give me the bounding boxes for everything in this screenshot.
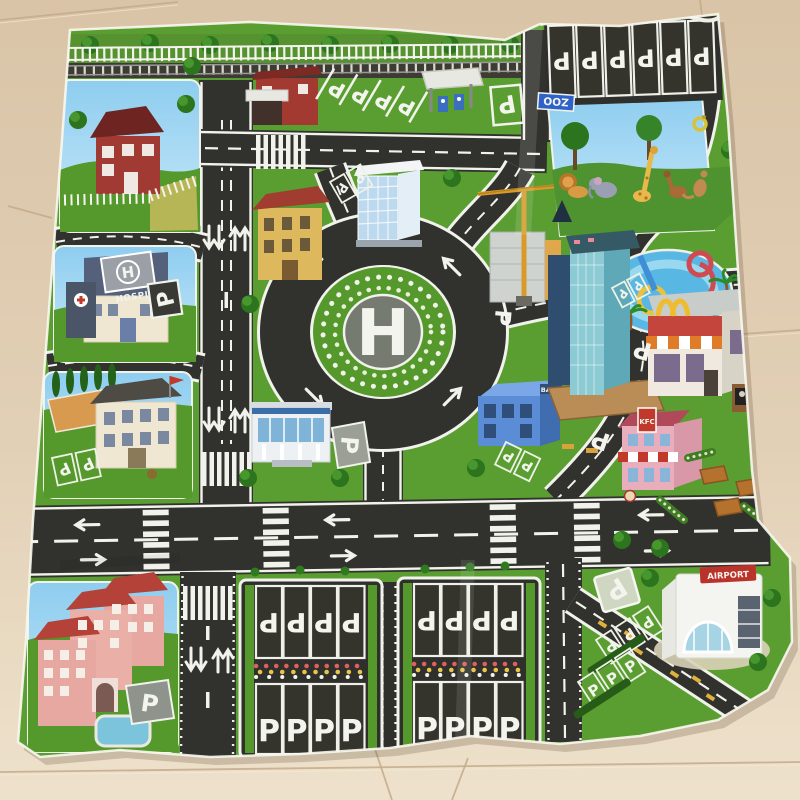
tree-icon bbox=[763, 589, 781, 607]
kfc-awning bbox=[618, 452, 678, 462]
svg-text:ZOO: ZOO bbox=[543, 94, 569, 108]
airport-sign-board: AIRPORT bbox=[700, 565, 757, 584]
svg-text:P: P bbox=[581, 45, 600, 74]
svg-text:P: P bbox=[313, 714, 335, 749]
svg-text:P: P bbox=[342, 606, 362, 637]
svg-text:P: P bbox=[258, 714, 280, 749]
school-building bbox=[90, 376, 184, 479]
arch-entrance bbox=[96, 683, 114, 712]
hospital-panel: H HOSPITAL P bbox=[54, 246, 196, 362]
svg-text:P: P bbox=[637, 43, 656, 72]
svg-text:P: P bbox=[341, 714, 363, 749]
svg-text:P: P bbox=[286, 714, 308, 749]
svg-text:P: P bbox=[334, 435, 363, 455]
logo-badge-icon bbox=[625, 491, 636, 502]
tree-icon bbox=[69, 111, 87, 129]
farm-panel bbox=[60, 80, 200, 232]
svg-text:P: P bbox=[553, 46, 572, 75]
svg-text:P: P bbox=[609, 44, 628, 73]
play-mat-photo: H bbox=[0, 0, 800, 800]
svg-text:P: P bbox=[472, 604, 492, 635]
svg-text:P: P bbox=[314, 606, 334, 637]
road-parking-mark: P bbox=[488, 309, 514, 327]
svg-text:P: P bbox=[287, 606, 307, 637]
svg-text:P: P bbox=[417, 604, 437, 635]
fire-station bbox=[246, 66, 322, 125]
fuel-pump-icon bbox=[454, 94, 464, 110]
south-avenue bbox=[180, 572, 236, 758]
photo-stage: H bbox=[0, 0, 800, 800]
kfc-sign: KFC bbox=[639, 418, 654, 426]
awning bbox=[646, 336, 724, 349]
apartment-parking-pad: P bbox=[126, 680, 174, 724]
svg-text:P: P bbox=[692, 41, 711, 70]
hospital-roof-letter: H bbox=[121, 263, 136, 283]
police-parking-pad: P bbox=[332, 422, 370, 468]
parking-lot-west: P P P P P P P P bbox=[240, 580, 382, 758]
kfc-sign-board: KFC bbox=[638, 408, 656, 432]
civic-building bbox=[252, 186, 330, 280]
svg-text:P: P bbox=[259, 606, 279, 637]
svg-text:P: P bbox=[665, 42, 684, 71]
apartment-panel: P bbox=[28, 572, 178, 752]
tree-icon bbox=[749, 653, 767, 671]
play-mat: H bbox=[10, 10, 792, 758]
hospital-parking-pad: P bbox=[148, 280, 182, 318]
tree-icon bbox=[177, 95, 195, 113]
tree-icon bbox=[641, 569, 659, 587]
fuel-pump-icon bbox=[438, 96, 448, 112]
school-panel: P P bbox=[44, 363, 192, 498]
svg-text:P: P bbox=[500, 604, 520, 635]
helipad-letter: H bbox=[356, 297, 410, 371]
zoo-sign: ZOO bbox=[537, 93, 574, 111]
